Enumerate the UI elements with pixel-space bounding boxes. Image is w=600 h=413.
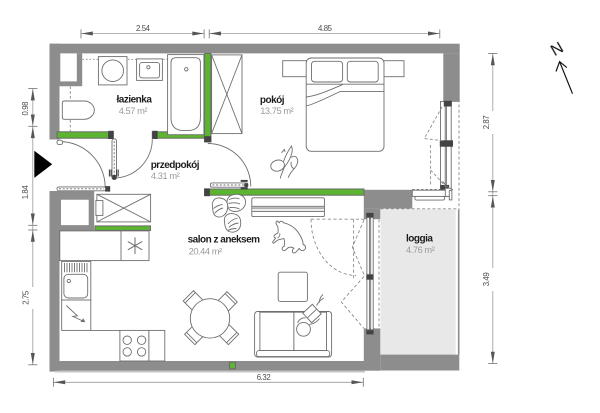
svg-text:pokój: pokój	[260, 95, 285, 106]
svg-text:loggia: loggia	[406, 233, 433, 244]
svg-text:0.98: 0.98	[21, 102, 30, 116]
svg-text:13.75 m²: 13.75 m²	[260, 106, 293, 116]
svg-text:2.87: 2.87	[482, 116, 491, 130]
svg-text:łazienka: łazienka	[117, 95, 153, 106]
svg-text:4.85: 4.85	[318, 24, 333, 33]
svg-text:przedpokój: przedpokój	[151, 160, 200, 171]
svg-text:4.76 m²: 4.76 m²	[406, 245, 435, 255]
svg-text:2.75: 2.75	[22, 290, 31, 305]
svg-text:4.31 m²: 4.31 m²	[151, 171, 180, 181]
svg-text:2.54: 2.54	[136, 24, 151, 33]
svg-text:6.32: 6.32	[257, 373, 271, 382]
svg-text:20.44 m²: 20.44 m²	[189, 246, 222, 256]
svg-text:salon z aneksem: salon z aneksem	[188, 234, 261, 245]
svg-text:3.49: 3.49	[482, 273, 491, 287]
svg-text:1.84: 1.84	[21, 185, 30, 200]
svg-text:4.57 m²: 4.57 m²	[119, 106, 148, 116]
